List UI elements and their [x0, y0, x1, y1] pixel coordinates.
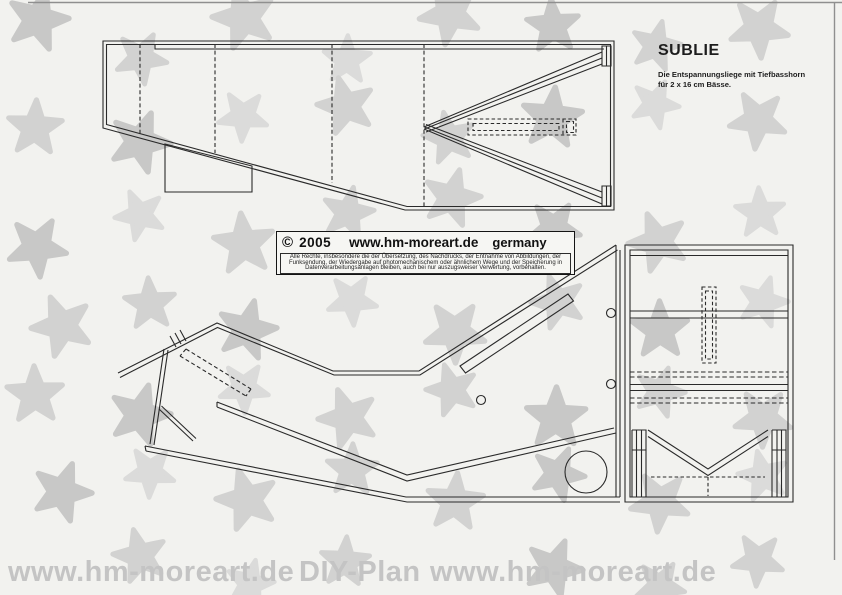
starfish-watermark [316, 30, 374, 89]
starfish-watermark [514, 528, 590, 595]
starfish-watermark [525, 268, 595, 339]
starfish-watermark [622, 74, 684, 137]
starfish-watermark-pattern [0, 0, 799, 595]
top-view-foot-rect [165, 144, 252, 192]
starfish-watermark [518, 381, 598, 461]
starfish-watermark [3, 359, 71, 429]
starfish-watermark [6, 95, 69, 160]
starfish-watermark [621, 14, 687, 81]
starfish-watermark [425, 471, 485, 528]
starfish-watermark [625, 360, 691, 426]
starfish-watermark [312, 71, 379, 136]
starfish-watermark [117, 272, 186, 341]
front-dashed-line-upper [630, 372, 788, 377]
starfish-watermark [634, 563, 686, 595]
starfish-watermark [736, 450, 786, 502]
side-hole-3 [607, 380, 616, 389]
starfish-watermark [116, 30, 172, 88]
starfish-watermark [110, 184, 174, 249]
starfish-watermark [317, 265, 384, 331]
starfish-watermark [419, 163, 486, 228]
side-surface-inner [120, 250, 618, 378]
starfish-watermark [228, 559, 276, 595]
starfish-watermark [718, 0, 797, 65]
scanned-plan-page: SUBLIE Die Entspannungsliege mit Tiefbas… [0, 0, 842, 595]
starfish-watermark [725, 524, 794, 593]
starfish-watermark [629, 475, 691, 534]
starfish-watermark [0, 207, 77, 283]
starfish-watermark [311, 380, 383, 451]
starfish-watermark [27, 454, 99, 525]
starfish-watermark [719, 81, 793, 154]
starfish-watermark [104, 381, 178, 454]
side-right-edge [616, 245, 620, 497]
starfish-watermark [729, 183, 786, 242]
line-art [103, 41, 793, 502]
starfish-watermark [212, 358, 272, 419]
starfish-watermark [728, 268, 794, 334]
side-hole-1 [477, 396, 486, 405]
starfish-watermark [106, 522, 177, 593]
horn-brace-bottom [602, 186, 611, 206]
starfish-watermark [3, 0, 74, 52]
starfish-watermark [24, 284, 105, 365]
starfish-watermark [519, 0, 590, 64]
starfish-watermark [621, 295, 697, 370]
starfish-watermark [417, 290, 497, 370]
front-port-dashed [702, 287, 716, 363]
starfish-watermark [319, 437, 381, 500]
starfish-watermark [206, 293, 284, 372]
starfish-watermark [310, 531, 377, 595]
starfish-watermark [534, 446, 588, 502]
side-hole-2 [607, 309, 616, 318]
starfish-watermark [212, 87, 269, 146]
starfish-watermark [209, 466, 283, 539]
starfish-watermark [203, 208, 282, 286]
top-view-dashed-dividers [140, 44, 424, 206]
plan-drawing-canvas [0, 0, 842, 595]
